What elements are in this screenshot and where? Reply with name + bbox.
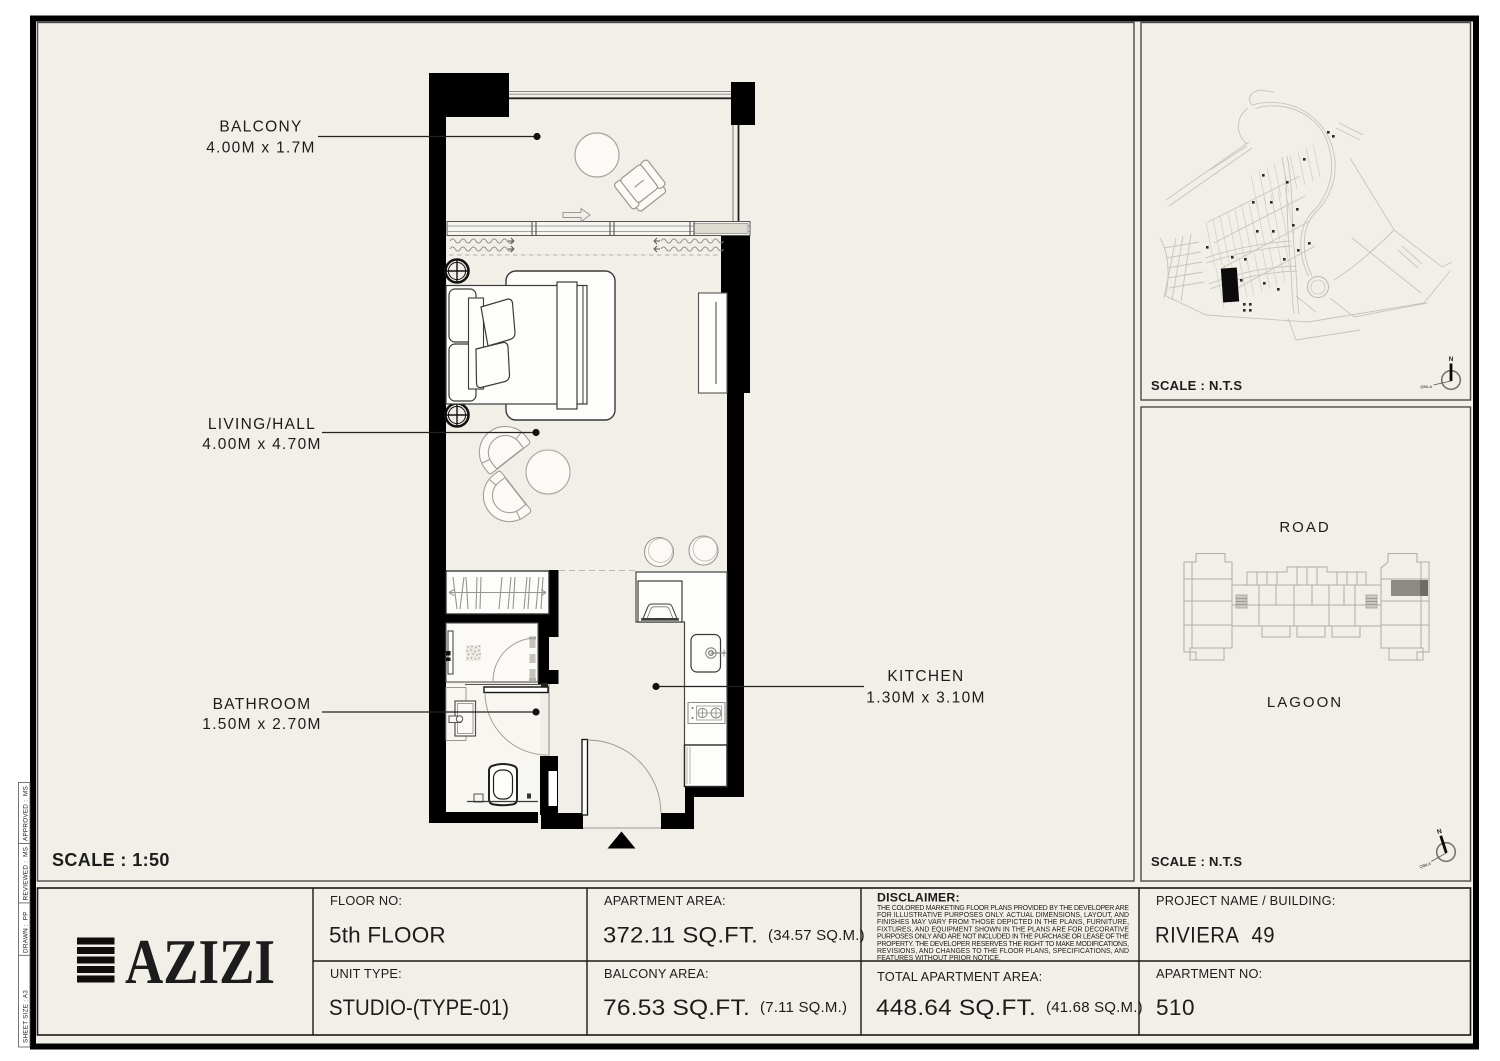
svg-text:(7.11 SQ.M.): (7.11 SQ.M.)	[760, 999, 847, 1016]
svg-text:(41.68 SQ.M.): (41.68 SQ.M.)	[1046, 999, 1143, 1016]
svg-text:4.00M x 1.7M: 4.00M x 1.7M	[206, 140, 316, 157]
svg-text:TOTAL APARTMENT AREA:: TOTAL APARTMENT AREA:	[877, 969, 1042, 984]
svg-text:BATHROOM: BATHROOM	[213, 696, 312, 713]
svg-text:SHEET SIZE : A3: SHEET SIZE : A3	[23, 990, 30, 1043]
svg-text:LIVING/HALL: LIVING/HALL	[208, 416, 316, 433]
svg-text:ROAD: ROAD	[1279, 519, 1330, 536]
svg-text:RIVIERA 49: RIVIERA 49	[1155, 923, 1275, 948]
svg-text:REVIEWED : MS: REVIEWED : MS	[23, 847, 30, 901]
svg-text:REVISIONS, AND CHANGES TO THE: REVISIONS, AND CHANGES TO THE FLOOR PLAN…	[877, 948, 1129, 955]
svg-text:APARTMENT AREA:: APARTMENT AREA:	[604, 893, 726, 908]
svg-text:LAGOON: LAGOON	[1267, 694, 1343, 711]
svg-text:AZIZI: AZIZI	[125, 927, 275, 997]
svg-text:APPROVED : MS: APPROVED : MS	[23, 786, 30, 841]
svg-text:76.53 SQ.FT.: 76.53 SQ.FT.	[603, 995, 750, 1020]
svg-text:FLOOR NO:: FLOOR NO:	[330, 893, 402, 908]
svg-text:APARTMENT NO:: APARTMENT NO:	[1156, 966, 1262, 981]
svg-text:THE COLORED MARKETING FLOOR PL: THE COLORED MARKETING FLOOR PLANS PROVID…	[877, 905, 1129, 912]
svg-text:KITCHEN: KITCHEN	[887, 668, 964, 685]
svg-text:SCALE : 1:50: SCALE : 1:50	[52, 850, 170, 870]
svg-text:1.30M x 3.10M: 1.30M x 3.10M	[866, 690, 985, 707]
svg-text:PROPERTY. THE DEVELOPER RESERV: PROPERTY. THE DEVELOPER RESERVES THE RIG…	[877, 941, 1129, 948]
svg-text:PROJECT NAME / BUILDING:: PROJECT NAME / BUILDING:	[1156, 893, 1335, 908]
svg-text:FOR ILLUSTRATIVE PURPOSES ONLY: FOR ILLUSTRATIVE PURPOSES ONLY. ACTUAL D…	[877, 912, 1129, 919]
svg-text:SCALE : N.T.S: SCALE : N.T.S	[1151, 378, 1242, 393]
svg-text:FEATURES WITHOUT PRIOR NOTICE.: FEATURES WITHOUT PRIOR NOTICE.	[877, 955, 1001, 962]
svg-text:1.50M x 2.70M: 1.50M x 2.70M	[202, 716, 321, 733]
svg-text:N: N	[1449, 356, 1454, 363]
svg-text:(34.57 SQ.M.): (34.57 SQ.M.)	[768, 927, 865, 944]
svg-text:372.11 SQ.FT.: 372.11 SQ.FT.	[603, 923, 758, 948]
svg-text:QIBLA: QIBLA	[1420, 384, 1432, 389]
svg-text:510: 510	[1156, 995, 1195, 1020]
svg-text:STUDIO-(TYPE-01): STUDIO-(TYPE-01)	[329, 995, 509, 1020]
svg-text:FIXTURES, AND EQUIPMENT SHOWN: FIXTURES, AND EQUIPMENT SHOWN IN THE PLA…	[877, 926, 1129, 933]
svg-text:UNIT TYPE:: UNIT TYPE:	[330, 966, 402, 981]
svg-text:5th FLOOR: 5th FLOOR	[329, 923, 446, 948]
svg-text:FINISHES MAY VARY FROM THOSE D: FINISHES MAY VARY FROM THOSE DEPICTED IN…	[877, 919, 1129, 926]
svg-text:PURPOSES ONLY AND ARE NOT INCL: PURPOSES ONLY AND ARE NOT INCLUDED IN TH…	[877, 934, 1129, 941]
svg-text:DRAWN : PP: DRAWN : PP	[23, 911, 30, 953]
svg-text:SCALE : N.T.S: SCALE : N.T.S	[1151, 854, 1242, 869]
svg-text:448.64 SQ.FT.: 448.64 SQ.FT.	[876, 995, 1036, 1020]
svg-text:DISCLAIMER:: DISCLAIMER:	[877, 891, 960, 905]
svg-text:BALCONY AREA:: BALCONY AREA:	[604, 966, 709, 981]
svg-text:BALCONY: BALCONY	[219, 119, 302, 136]
svg-text:4.00M x 4.70M: 4.00M x 4.70M	[202, 436, 321, 453]
